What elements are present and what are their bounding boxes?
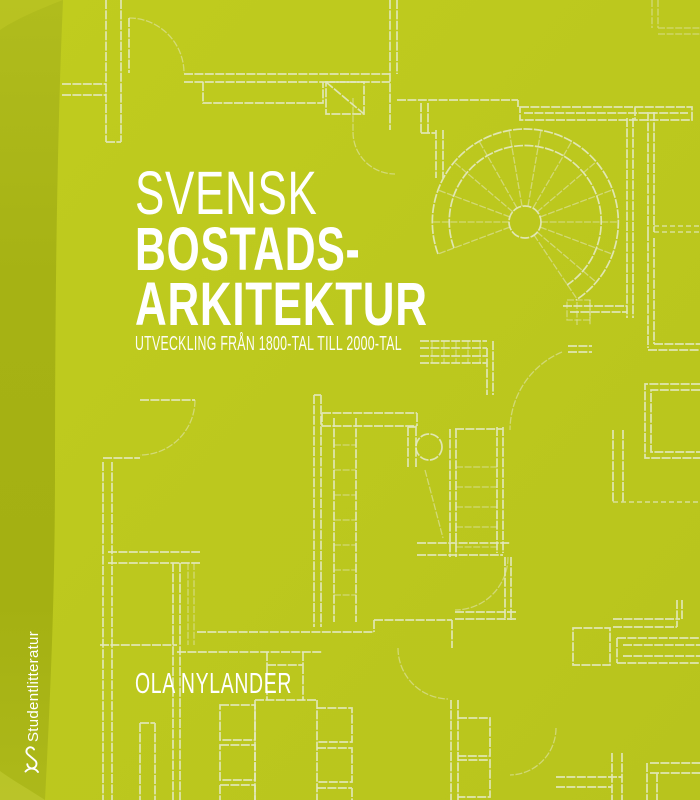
floor-plan-drawing	[0, 0, 700, 800]
book-cover: SVENSK BOSTADS- ARKITEKTUR UTVECKLING FR…	[0, 0, 700, 800]
subtitle: UTVECKLING FRÅN 1800-TAL TILL 2000-TAL	[135, 334, 402, 355]
author-name: OLA NYLANDER	[135, 670, 292, 699]
title-line-3: ARKITEKTUR	[135, 274, 428, 335]
publisher-logo-icon	[19, 745, 42, 776]
publisher-name: Studentlitteratur	[25, 631, 42, 742]
